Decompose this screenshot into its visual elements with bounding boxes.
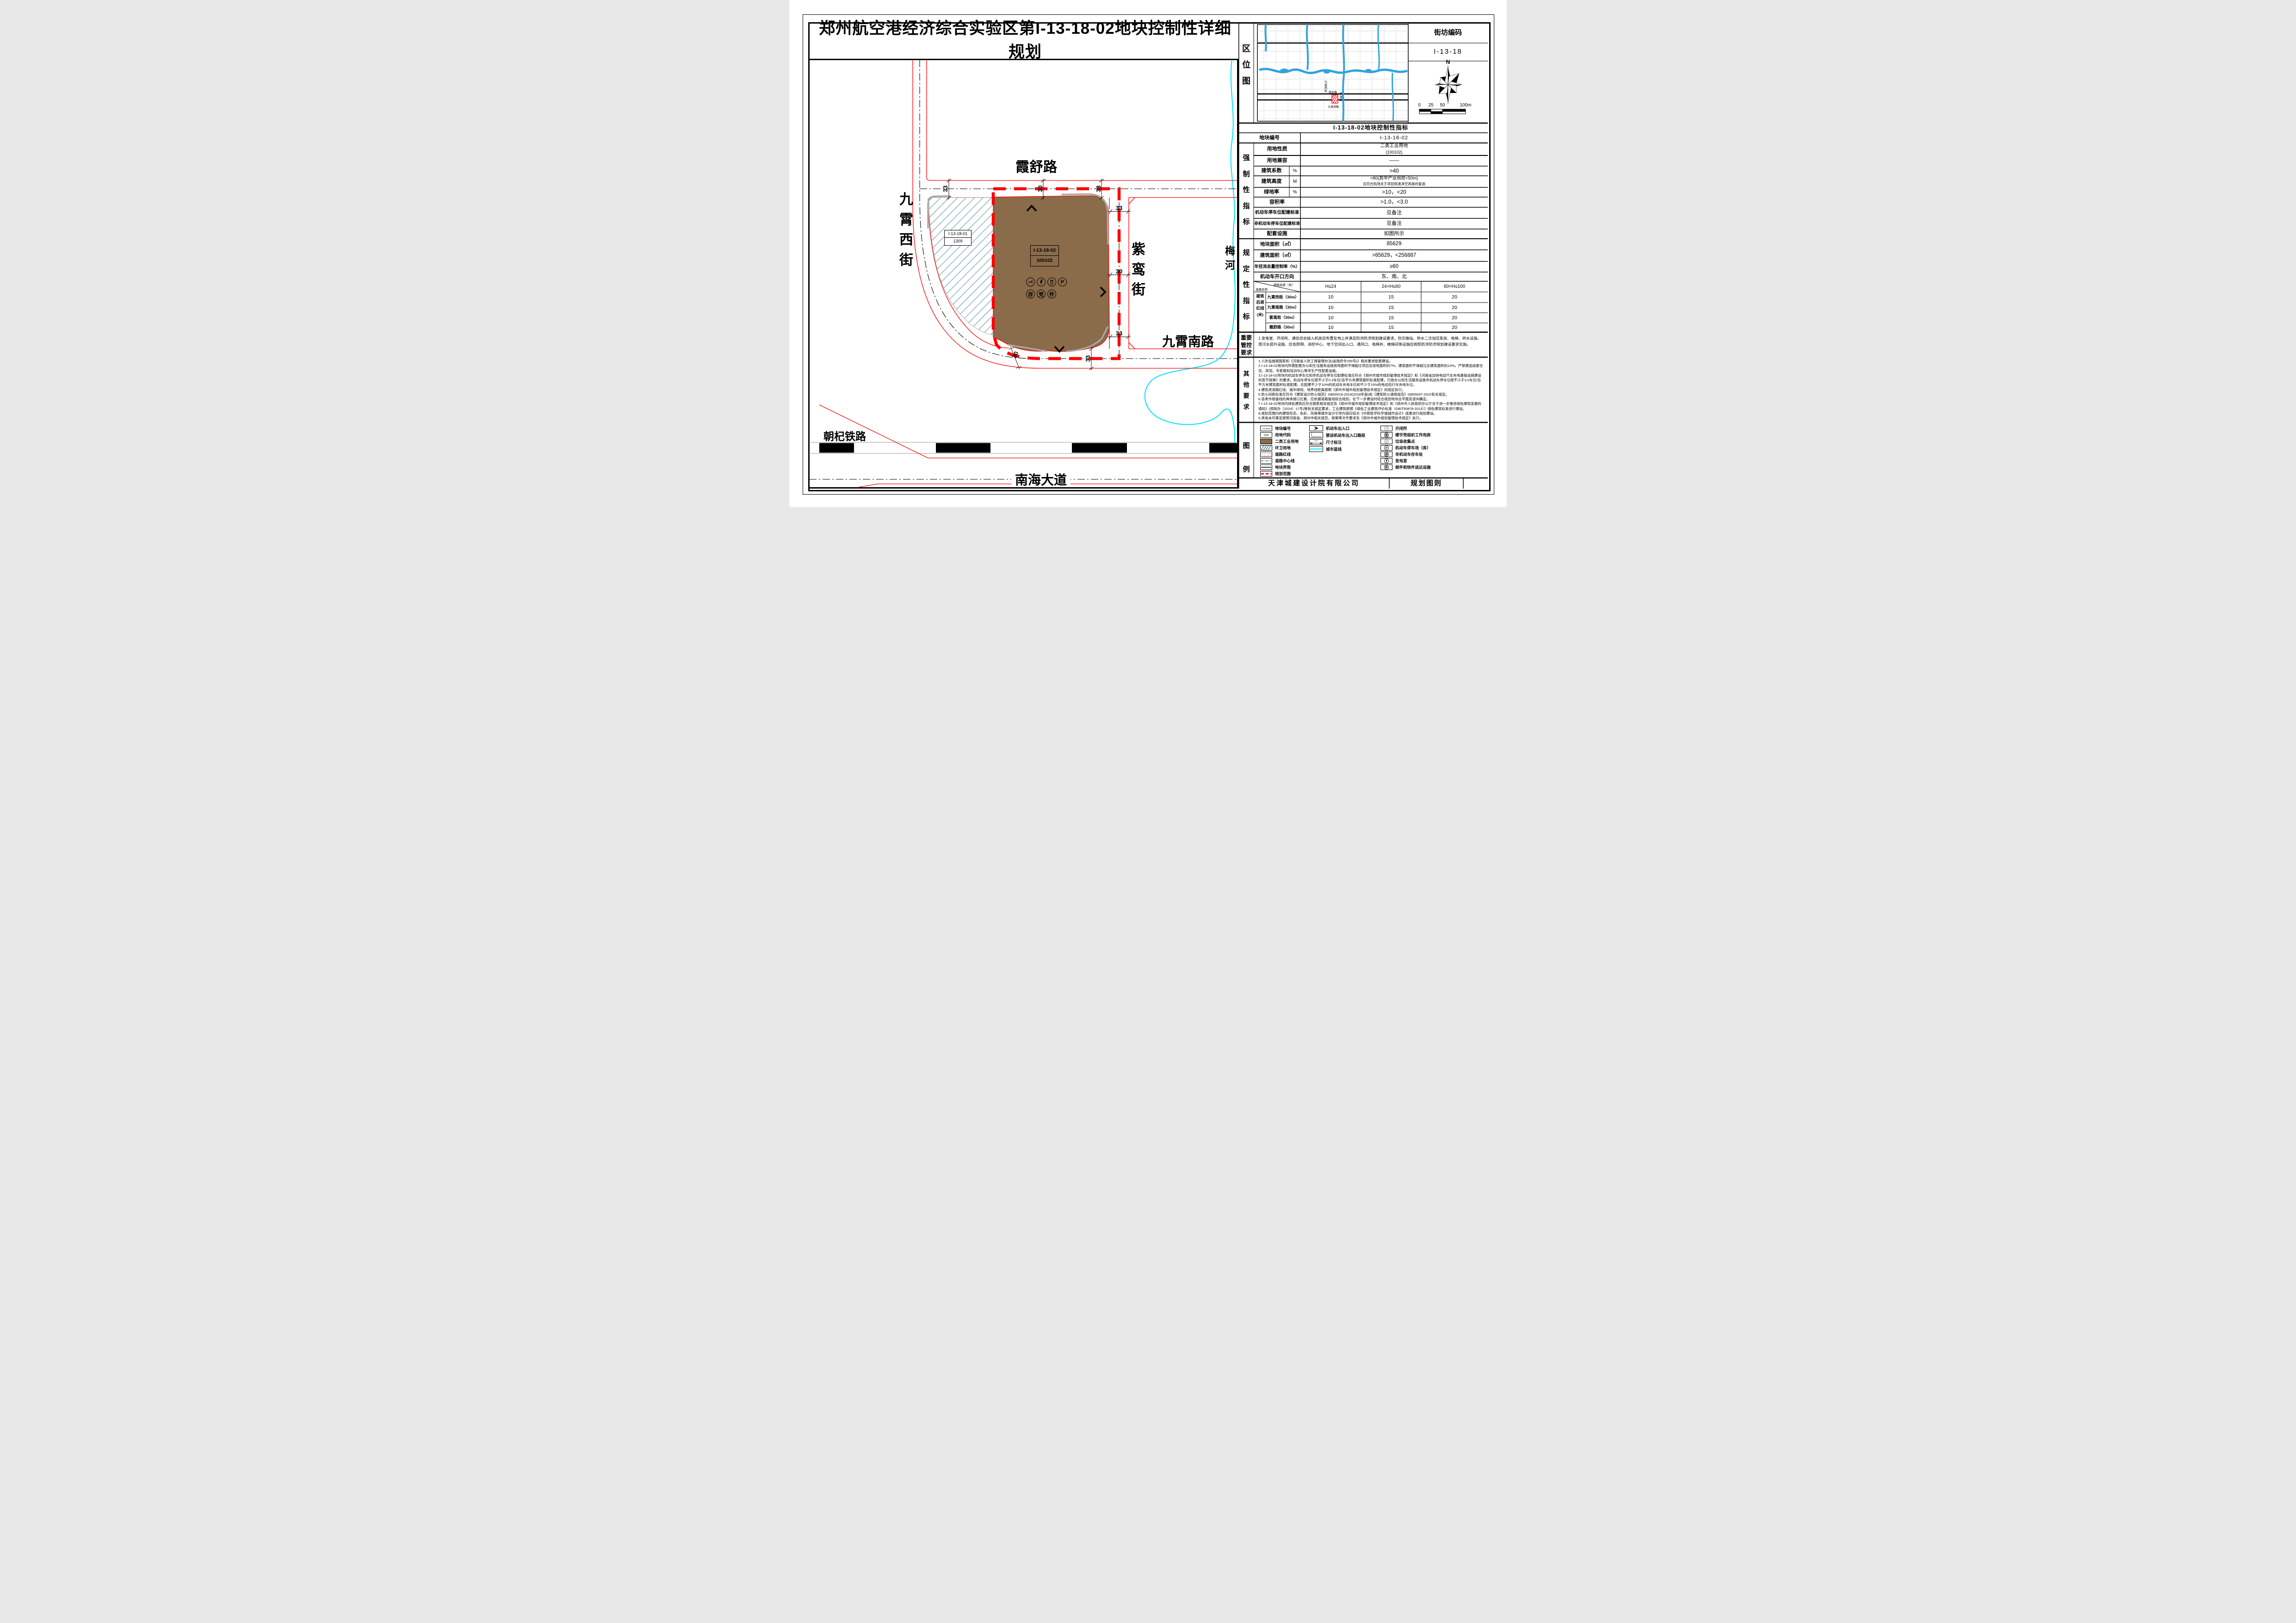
setback-col1: H≤24	[1300, 281, 1361, 292]
mini-label-ziluan: 紫 鸾 街	[1339, 93, 1343, 102]
substation-icon	[1037, 278, 1046, 286]
legend-swatch-parcel-code: I-13-18-02	[1260, 426, 1272, 431]
row-compat-label: 用地兼容	[1254, 155, 1300, 166]
parcel-label-i131802: I-13-18-02 100102	[1030, 245, 1059, 266]
row-parcel-no-value: I-13-18-02	[1300, 133, 1488, 143]
legend-item-label: 非机动车存车处	[1395, 451, 1423, 458]
row-compat-value: ——	[1300, 155, 1488, 166]
row-nonmotor-label: 非机动车停车位配建标准	[1254, 218, 1300, 229]
setback-row-road: 九霄西街（30m）	[1266, 292, 1300, 303]
legend-item-label: 城市蓝线	[1326, 446, 1342, 452]
legend-swatch-blue-line	[1309, 446, 1323, 452]
mail-delivery-icon: 件	[1047, 290, 1056, 298]
legend-swatch-sanitation	[1260, 445, 1272, 451]
row-facilities-label: 配套设施	[1254, 229, 1300, 239]
setback-row-v3: 20	[1421, 323, 1488, 332]
garbage-collection-icon	[1047, 278, 1056, 286]
other-item: 2.I-13-18-02地块内所需配套办公和生活服务设施用地面积不得超过项目总用…	[1258, 364, 1484, 373]
setback-row-v1: 10	[1300, 292, 1361, 303]
legend-label: 图 例	[1241, 434, 1252, 481]
location-map-label: 区 位 图	[1240, 41, 1253, 89]
row-parking-value: 见备注	[1300, 207, 1488, 218]
legend-swatch-no-entrance	[1309, 432, 1323, 438]
svg-text:30.0: 30.0	[1314, 440, 1318, 442]
svg-text:件: 件	[1385, 465, 1388, 469]
legend-item-label: 道路中心线	[1275, 458, 1295, 464]
setback-diag-bottom: 道路名称	[1256, 287, 1268, 291]
dim-30-xiashu-mid: 30	[1037, 182, 1044, 196]
other-label: 其 他 要 求	[1241, 368, 1252, 413]
setback-row-v1: 10	[1300, 323, 1361, 332]
setback-row-road: 霞舒路（30m）	[1266, 323, 1300, 332]
parcel-industrial-i131802	[993, 196, 1109, 352]
sheet-title: 郑州航空港经济综合实验区第I-13-18-02地块控制性详细规划	[817, 27, 1233, 51]
row-green-label: 绿地率	[1254, 187, 1289, 197]
legend-item-label: 邮件和快件送达设施	[1395, 464, 1431, 471]
row-access-value: 东、南、北	[1300, 272, 1488, 281]
svg-text:存: 存	[1385, 452, 1388, 456]
legend-item-label: 楼宇党组织工作用房	[1395, 432, 1431, 438]
row-nonmotor-value: 见备注	[1300, 218, 1488, 229]
legend-swatch-substation	[1380, 458, 1392, 464]
mini-label-jiuxiaoxi: 九 霄 西 街	[1324, 81, 1328, 93]
scale-tick-50: 50	[1436, 102, 1449, 108]
legend-swatch-bicycle-storage: 存	[1380, 452, 1392, 457]
compass-rose-icon	[1430, 64, 1467, 105]
dim-30-ziluan-mid: 30	[1112, 268, 1126, 275]
legend-swatch-switch-station	[1380, 426, 1392, 431]
row-green-value: >10，<20	[1300, 187, 1488, 197]
legend-item-label: 环卫用地	[1275, 445, 1291, 451]
parking-icon: P	[1058, 278, 1067, 286]
row-green-unit: %	[1289, 187, 1300, 197]
road-label-ziluan: 紫 鸾 街	[1131, 240, 1146, 300]
mini-label-xiashu: 霞舒路	[1329, 90, 1337, 94]
legend-swatch-use-code: 1303	[1260, 432, 1272, 438]
parcel-code: I-13-18-01	[945, 230, 971, 238]
legend-swatch-garbage	[1380, 439, 1392, 444]
row-area-value: 85629	[1300, 239, 1488, 250]
svg-text:P: P	[1386, 446, 1388, 450]
parcel-use-code: 100102	[1031, 256, 1058, 266]
road-label-xiashu: 霞舒路	[1010, 156, 1062, 175]
legend-item-label: 地块编号	[1275, 425, 1291, 432]
other-item: 7.I-13-18-02地块内绿色建筑应符合国家相关规范及《郑州市城市规划管理技…	[1258, 402, 1484, 411]
row-landuse-value: 二类工业用地	[1300, 143, 1488, 149]
setback-col3: 60<H≤100	[1421, 281, 1488, 292]
row-area-label: 地块面积（㎡）	[1254, 239, 1300, 250]
legend-item-label: 用地代码	[1275, 432, 1291, 438]
parcel-code: I-13-18-02	[1031, 246, 1058, 256]
legend-swatch-centerline	[1260, 458, 1272, 464]
group-mandatory-label: 强 制 性 指 标	[1240, 150, 1253, 230]
other-item: 5.防火间距标准应符合《建筑设计防火规范》GB50016-2014(2018年版…	[1258, 392, 1484, 397]
setback-group-label: 建筑 后退 红线 (米)	[1255, 293, 1266, 318]
setback-row-v2: 15	[1361, 303, 1421, 313]
parcel-use-code: 1309	[945, 238, 971, 245]
dim-33-jiuxiaonan-east: 33	[1085, 352, 1091, 365]
row-coeff-value: >40	[1300, 166, 1488, 176]
legend-item-label: 道路红线	[1275, 451, 1291, 458]
legend-item-label: 开闭所	[1395, 425, 1407, 432]
legend-item-label: 尺寸标注	[1326, 439, 1342, 445]
legend-swatch-road-redline	[1260, 452, 1272, 457]
indicators-title: I-13-18-02地块控制性指标	[1254, 123, 1488, 133]
legend-item-label: 规划范围	[1275, 471, 1291, 477]
row-far-value: >1.0，<3.0	[1300, 197, 1488, 207]
setback-row-v2: 15	[1361, 292, 1421, 303]
mini-label-jiuxiaonan: 九霄南路	[1328, 105, 1339, 109]
row-far-label: 容积率	[1254, 197, 1300, 207]
other-item: 4.建筑退道路红线、城市绿线、地界线距离按照《郑州市城市规划管理技术规定》的规定…	[1258, 388, 1484, 392]
block-code-label: 街坊编码	[1409, 25, 1487, 40]
plan-sheet: 郑州航空港经济综合实验区第I-13-18-02地块控制性详细规划	[789, 0, 1507, 507]
row-coeff-label: 建筑系数	[1254, 166, 1289, 176]
dim-33-xiashu-west: 33	[942, 182, 949, 196]
other-item: 6.各类市政管线的具体接口位置，应依据道路管线综合规划，在下一步建设时结合规划地…	[1258, 397, 1484, 402]
other-item: 3.I-13-18-02地块内机动车停车位和非机动车停车位配建标准应符合《郑州市…	[1258, 373, 1484, 388]
row-parking-label: 机动车停车位配建标准	[1254, 207, 1300, 218]
setback-row-v3: 20	[1421, 303, 1488, 313]
scale-tick-100: 100m	[1457, 102, 1474, 108]
other-item: 1.人防设施按国家和《河南省人防工程管理办法(省政府令200号)》相关要求配套建…	[1258, 359, 1484, 364]
party-room-icon: 党	[1037, 290, 1046, 298]
footer-sheet-name: 规划图则	[1389, 478, 1463, 489]
row-runoff-label: 年径流总量控制率（%）	[1254, 261, 1300, 272]
other-items: 1.人防设施按国家和《河南省人防工程管理办法(省政府令200号)》相关要求配套建…	[1258, 359, 1484, 421]
important-text: 1.变电室、开闭所、通信综合接入机房应布置在地上并满足防洪防涝规划建设要求。热交…	[1258, 336, 1483, 347]
setback-row-v3: 20	[1421, 292, 1488, 303]
row-height-value: <80(其中产业用房<50m)	[1300, 176, 1488, 182]
row-parcel-no-label: 地块编号	[1238, 133, 1300, 143]
row-floorarea-value: >85629，<256887	[1300, 250, 1488, 261]
road-label-chaoqi: 朝杞铁路	[820, 429, 870, 441]
svg-text:I-13-18-02: I-13-18-02	[1262, 427, 1271, 430]
group-prescriptive-label: 规 定 性 指 标	[1240, 245, 1253, 325]
parcel-label-i131801: I-13-18-01 1309	[944, 230, 972, 246]
svg-text:党: 党	[1385, 433, 1388, 437]
road-label-jiuxiaoxi: 九 霄 西 街	[898, 190, 914, 270]
legend-swatch-dimension: 30.0	[1309, 439, 1323, 445]
svg-text:1303: 1303	[1263, 434, 1269, 437]
legend-swatch-planning-scope	[1260, 471, 1272, 477]
legend-swatch-parking: P	[1380, 445, 1392, 451]
other-item: 9.其他未尽事宜按照河南省、郑州市相关规范、政策等文件要求及《郑州市城市规划管理…	[1258, 416, 1484, 421]
setback-row-road: 紫鸾街（30m）	[1266, 313, 1300, 323]
setback-col2: 24<H≤60	[1361, 281, 1421, 292]
switch-station-icon	[1026, 278, 1035, 286]
site-marker	[1332, 95, 1338, 103]
dim-33-ziluan-top: 33	[1112, 205, 1126, 211]
dim-33-xiashu-east: 33	[1095, 182, 1102, 196]
row-runoff-value: ≥60	[1300, 261, 1488, 272]
setback-row-v3: 20	[1421, 313, 1488, 323]
legend-swatch-mail: 件	[1380, 465, 1392, 470]
row-coeff-unit: %	[1289, 166, 1300, 176]
setback-diag-top: 建筑高度（米）	[1274, 282, 1295, 287]
other-item: 8.规划范围内的建筑形态、色彩、风格等城市设计引导内容应结合《中原医学科学城城市…	[1258, 411, 1484, 416]
legend-item-label: 地块界限	[1275, 464, 1291, 471]
legend-item-label: 垃圾收集点	[1395, 438, 1415, 445]
road-label-nanhai: 南海大道	[1011, 473, 1071, 486]
legend-item-label: 机动车出入口	[1326, 425, 1349, 431]
legend-swatch-parcel-boundary	[1260, 465, 1272, 470]
block-code-value: I-13-18	[1409, 45, 1487, 59]
row-height-label: 建筑高度	[1254, 176, 1289, 187]
row-facilities-value: 如图所示	[1300, 229, 1488, 239]
road-label-jiuxiaonan: 九霄南路	[1159, 333, 1217, 349]
dim-33-ziluan-low: 33	[1112, 330, 1126, 337]
row-access-label: 机动车开口方向	[1254, 272, 1300, 281]
setback-row-v1: 10	[1300, 313, 1361, 323]
bicycle-storage-icon: 存	[1026, 290, 1035, 298]
legend-swatch-party-room: 党	[1380, 432, 1392, 438]
legend-item-label: 变电室	[1395, 458, 1407, 464]
legend-swatch-entrance-arrow	[1309, 425, 1323, 431]
footer-company: 天津城建设计院有限公司	[1238, 478, 1389, 489]
river-label-meihe: 梅 河	[1224, 244, 1236, 273]
setback-row-road: 九霄南路（30m）	[1266, 303, 1300, 313]
row-height-unit: M	[1289, 176, 1300, 187]
row-height-note: 且符合机场关于项目核准净空高度的复函	[1300, 182, 1488, 187]
site-plan-svg	[808, 59, 1238, 489]
row-landuse-label: 用地性质	[1254, 143, 1300, 155]
setback-row-v1: 10	[1300, 303, 1361, 313]
setback-row-v2: 15	[1361, 323, 1421, 332]
setback-row-v2: 15	[1361, 313, 1421, 323]
row-landuse-code: (100102)	[1300, 149, 1488, 155]
important-label: 重要 管控 要求	[1239, 334, 1254, 357]
legend-item-label: 机动车停车场（库）	[1395, 445, 1431, 451]
legend-item-label: 二类工业用地	[1275, 438, 1299, 445]
legend-swatch-industrial	[1260, 439, 1272, 444]
row-floorarea-label: 建筑面积（㎡）	[1254, 250, 1300, 261]
legend-item-label: 禁设机动车出入口路段	[1326, 432, 1365, 438]
